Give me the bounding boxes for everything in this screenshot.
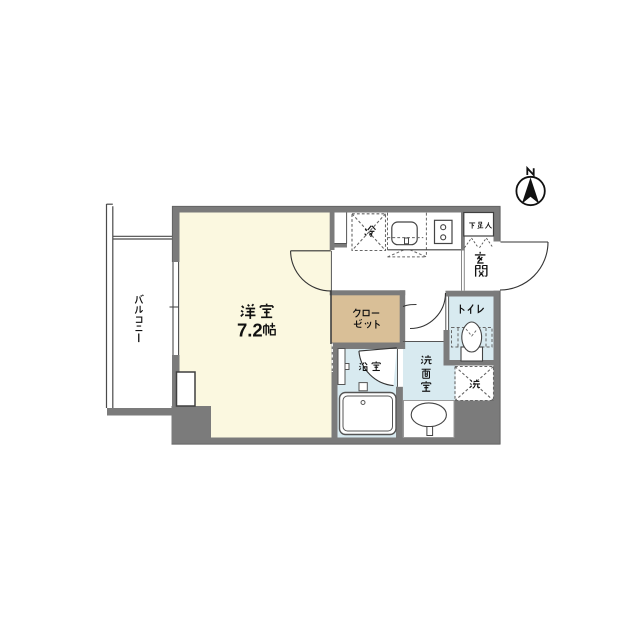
svg-text:7.2: 7.2 [237, 320, 263, 341]
